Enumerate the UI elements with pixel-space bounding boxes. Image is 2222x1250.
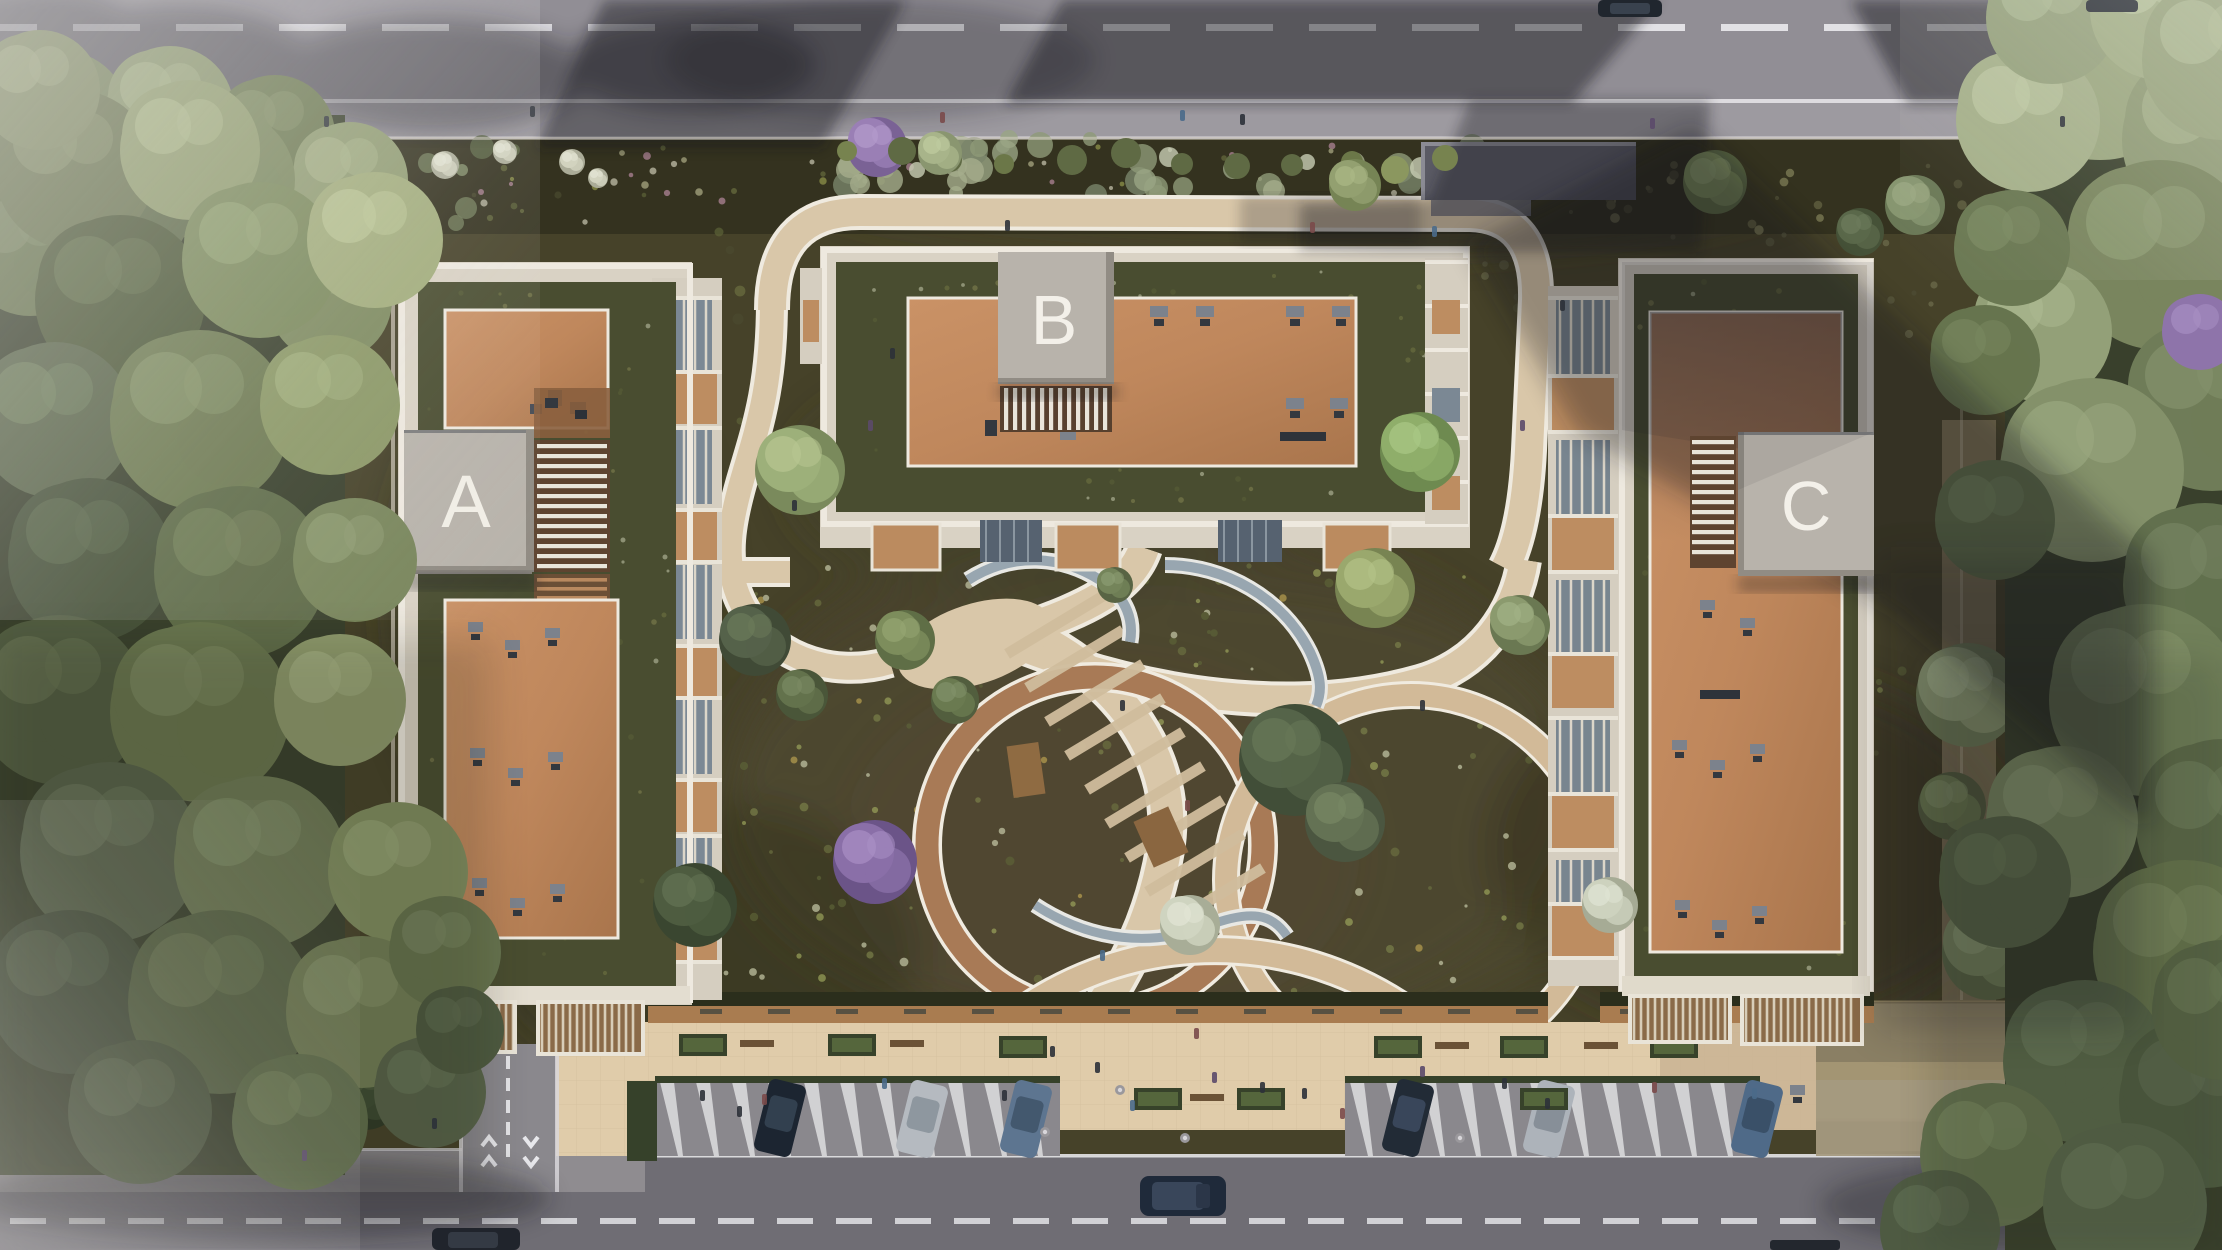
svg-text:B: B: [1031, 281, 1078, 359]
svg-text:C: C: [1781, 467, 1832, 545]
